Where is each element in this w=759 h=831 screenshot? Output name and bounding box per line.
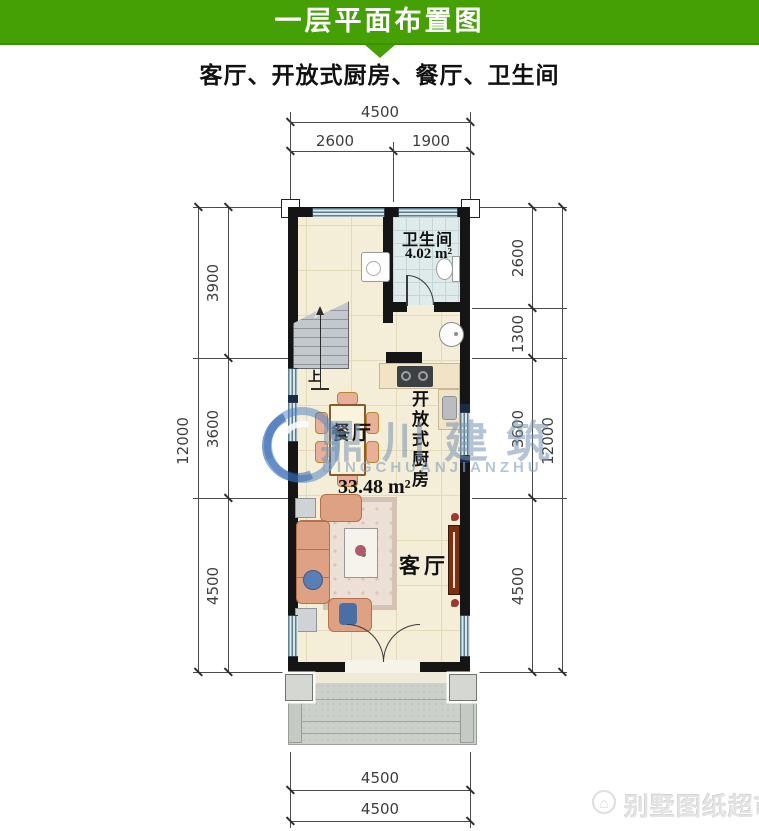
window-right-living (460, 615, 470, 657)
dim-bottom-1: 4500 (340, 769, 420, 787)
bathroom-wall-bottom-right (434, 302, 460, 312)
porch-pillar-left (285, 674, 313, 701)
dim-right-total: 12000 (539, 401, 557, 481)
table-flowers (355, 545, 366, 556)
porch-side-left (288, 701, 302, 743)
washing-machine-door (366, 261, 381, 276)
window-cap-right-top (460, 404, 470, 412)
plant (451, 599, 459, 607)
step-edge (293, 733, 472, 734)
step-edge (291, 721, 474, 722)
dim-left-seg-3: 4500 (204, 546, 222, 626)
dim-left-seg-1: 3900 (204, 243, 222, 323)
window-left-stairs (288, 368, 298, 397)
stove-burner (401, 371, 411, 381)
dim-right-seg-3: 3600 (509, 389, 527, 469)
dining-label: 餐厅 (331, 418, 373, 445)
kitchen-label: 开放式厨房 (406, 390, 431, 490)
header-banner: 一层平面布置图 (0, 0, 759, 45)
window-cap-right-bottom (460, 455, 470, 463)
washing-machine (361, 252, 390, 282)
porch-pillar-right (449, 674, 477, 701)
brand-house-icon: ⌂ (592, 790, 616, 814)
tv-screen (453, 532, 455, 588)
tv-cabinet (448, 525, 460, 595)
basin-faucet (454, 332, 458, 336)
dining-chair (315, 441, 328, 463)
window-top-main (312, 208, 385, 217)
stove (397, 366, 433, 387)
dim-right-seg-2: 1300 (509, 294, 527, 374)
dim-right-seg-1: 2600 (509, 218, 527, 298)
window-mullion-left (288, 395, 298, 402)
plant (451, 513, 459, 521)
stove-burner (418, 371, 428, 381)
sofa (296, 520, 330, 604)
dim-right-seg-4: 4500 (509, 546, 527, 626)
coffee-table (344, 528, 378, 578)
bathroom-area-label: 4.02 m² (405, 246, 452, 263)
sofa-cushion (303, 570, 323, 590)
window-left-living (288, 615, 298, 657)
wash-basin (439, 322, 464, 347)
dim-top-seg-1: 2600 (300, 132, 370, 150)
dim-top-total: 4500 (340, 103, 420, 121)
dining-chair (315, 412, 328, 434)
kitchen-sink (442, 396, 457, 420)
living-label: 客厅 (399, 550, 449, 580)
side-table (295, 608, 317, 632)
bathroom-door-leaf (406, 275, 408, 306)
step-edge (289, 699, 476, 700)
floor-plan-page: 一层平面布置图 客厅、开放式厨房、餐厅、卫生间 4500 2600 1900 3… (0, 0, 759, 831)
dim-left-total: 12000 (174, 401, 192, 481)
stairs-arrow-base (311, 388, 329, 390)
sofa-throw (339, 603, 357, 625)
dim-bottom-2: 4500 (340, 800, 420, 818)
subtitle: 客厅、开放式厨房、餐厅、卫生间 (0, 56, 759, 90)
porch-side-right (460, 701, 474, 743)
window-right-kitchen (460, 412, 470, 457)
window-left-dining (288, 402, 298, 442)
side-table (295, 498, 316, 518)
window-top-bathroom (398, 208, 458, 217)
dim-top-seg-2: 1900 (396, 132, 466, 150)
total-area-label: 33.48 m² (338, 476, 411, 499)
porch-threshold (312, 672, 450, 683)
dim-left-seg-2: 3600 (204, 389, 222, 469)
stairs-up-label: 上 (308, 366, 321, 385)
page-title: 一层平面布置图 (0, 0, 759, 43)
brand-name: 别墅图纸超市 (624, 787, 759, 823)
toilet-tank (452, 256, 460, 282)
